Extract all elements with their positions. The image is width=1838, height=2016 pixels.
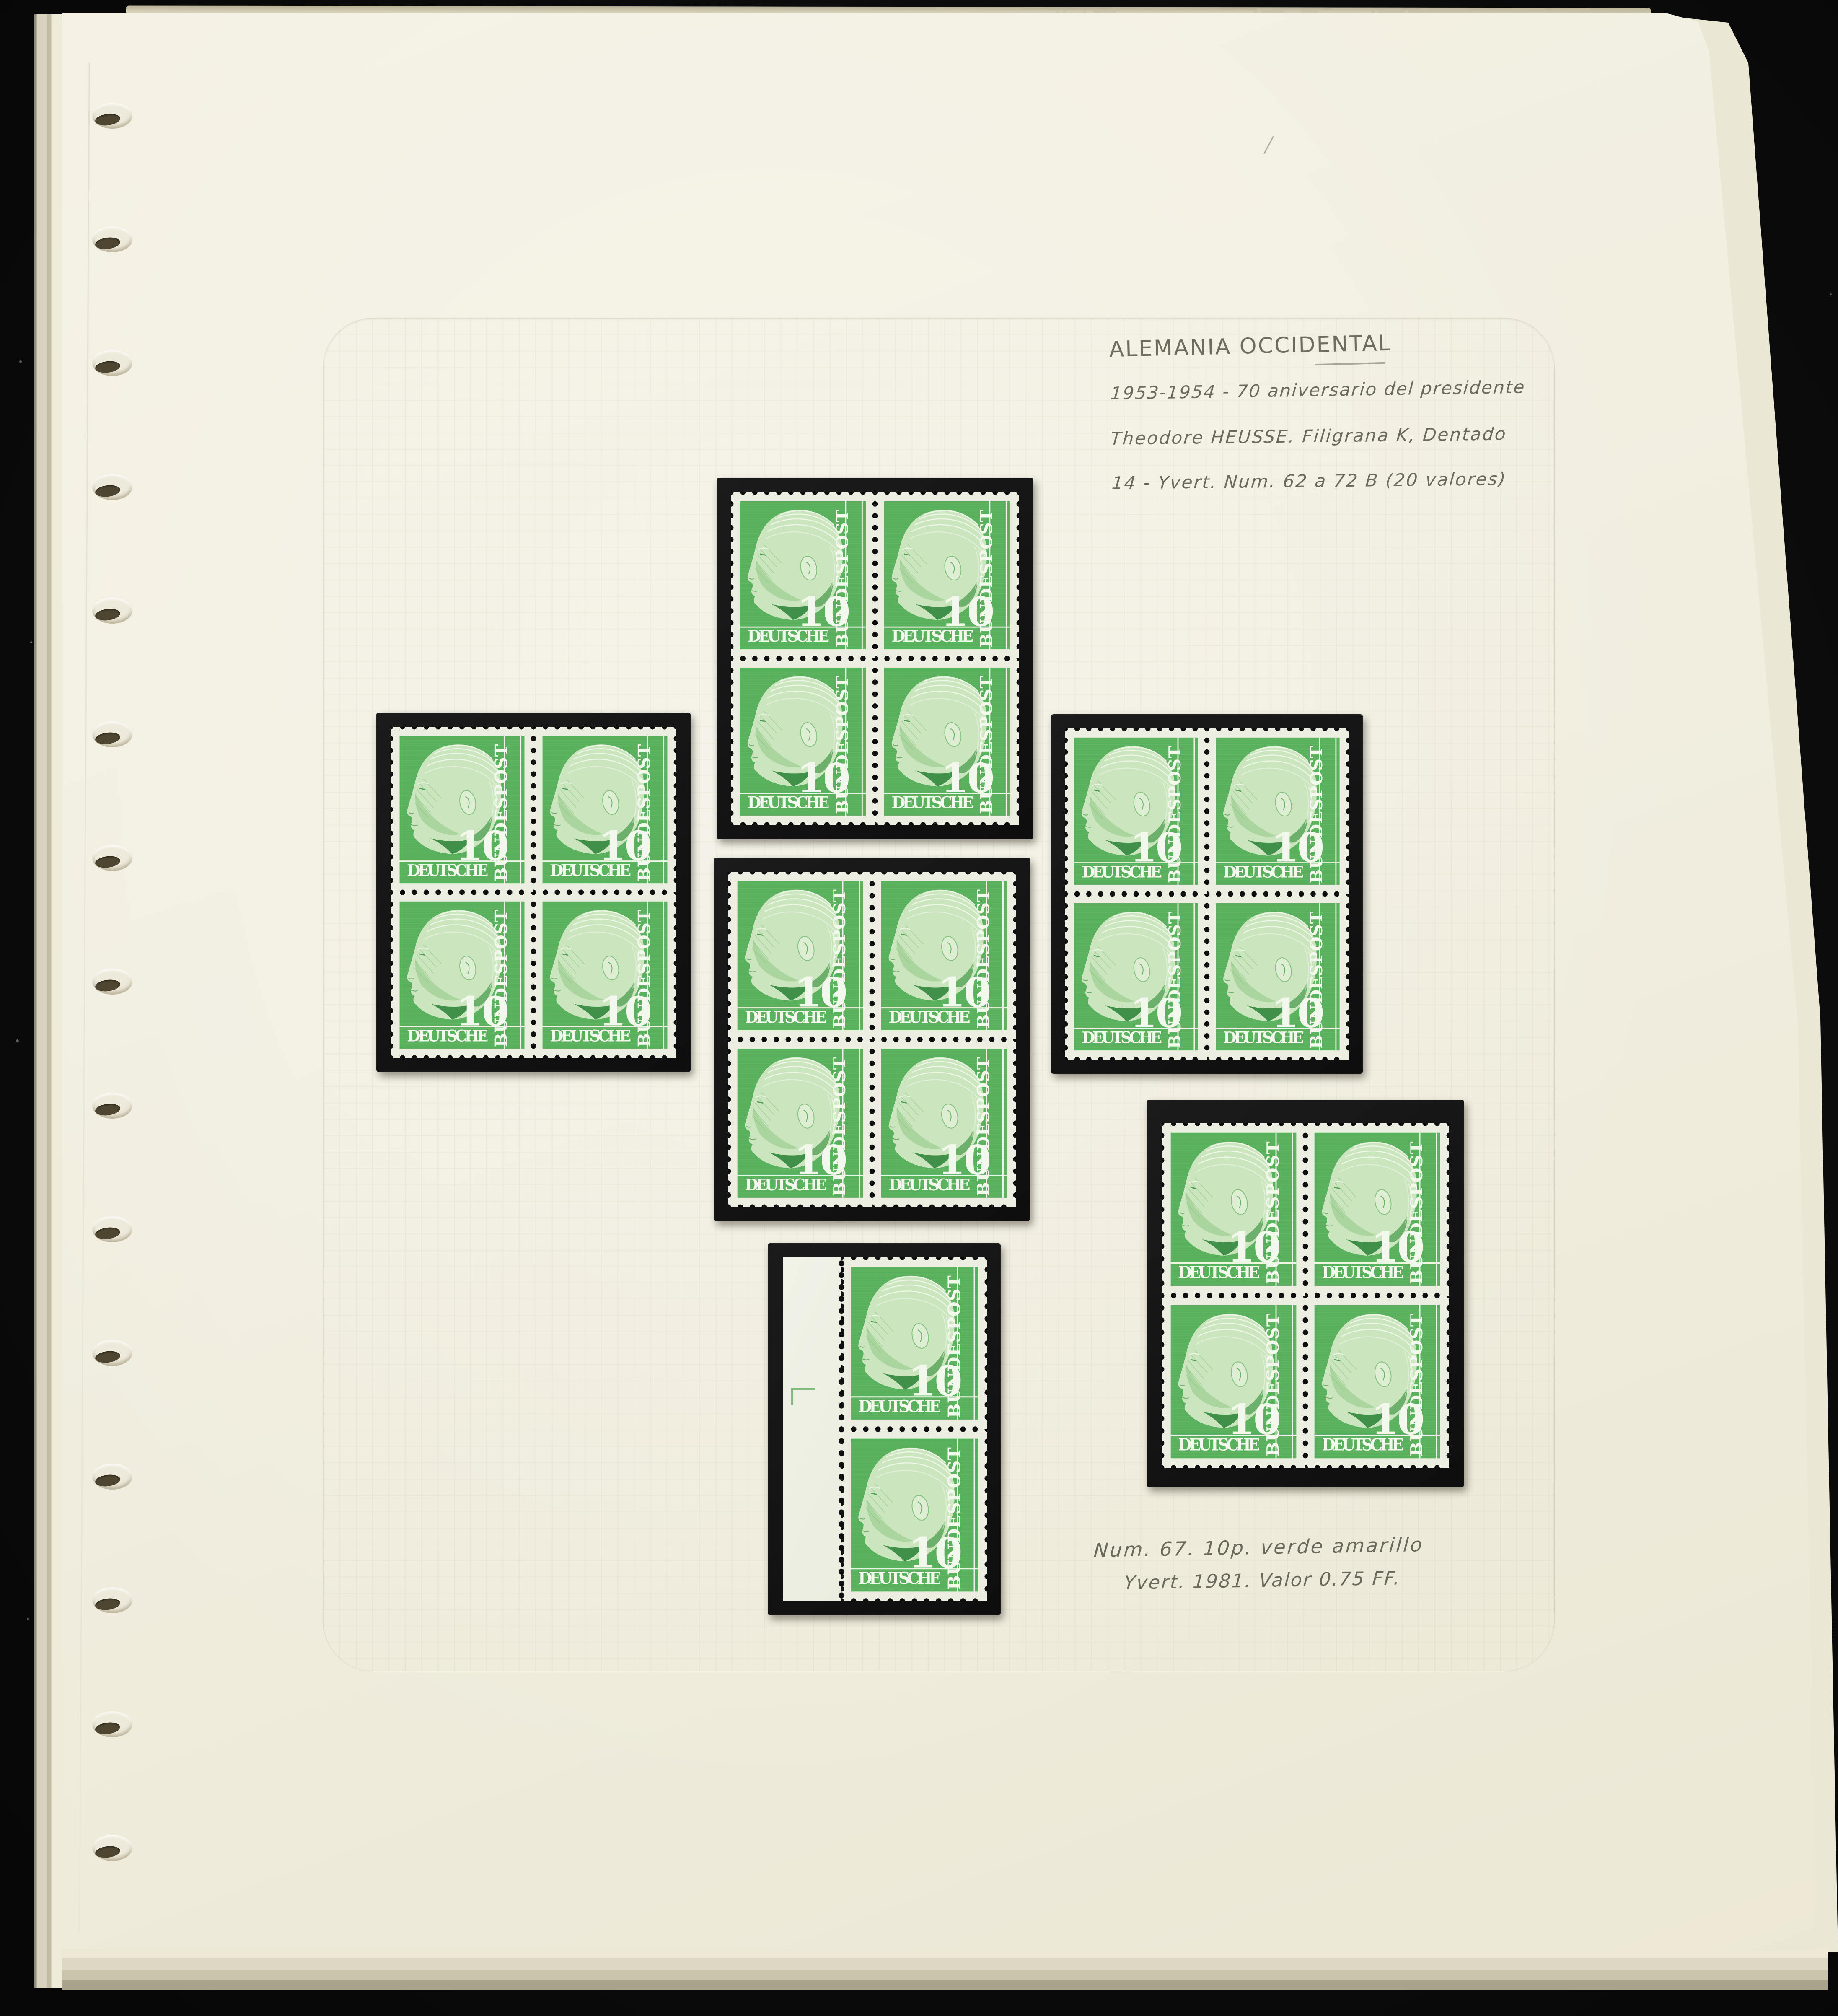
bottom-sheet-edges xyxy=(62,1946,1828,1990)
binder-hole xyxy=(92,350,132,376)
binder-hole xyxy=(92,226,132,252)
block-right xyxy=(1051,714,1363,1074)
block-bottom-right xyxy=(1147,1100,1464,1487)
page-stack-left-edge xyxy=(34,14,64,1988)
stamp xyxy=(731,492,875,658)
stamp-block-paper xyxy=(1065,728,1349,1060)
dust-speck xyxy=(1830,293,1832,295)
stamp xyxy=(1207,728,1349,894)
stamp xyxy=(875,492,1019,658)
binder-hole-opening xyxy=(95,360,121,374)
stamp xyxy=(1305,1296,1449,1468)
stamp xyxy=(728,872,872,1039)
album-photo-scene: ALEMANIA OCCIDENTAL 1953-1954 - 70 anive… xyxy=(0,0,1838,2016)
dust-speck xyxy=(19,360,22,363)
binder-hole-opening xyxy=(95,855,121,869)
stamp xyxy=(533,892,676,1058)
stamp xyxy=(1162,1123,1305,1296)
stamp xyxy=(1305,1123,1449,1296)
binder-hole-opening xyxy=(95,1102,121,1117)
stamp xyxy=(841,1257,987,1429)
binder-hole xyxy=(92,1835,132,1861)
stamp xyxy=(391,727,533,892)
binder-hole xyxy=(92,1587,132,1613)
binder-hole-opening xyxy=(95,236,121,251)
block-center xyxy=(714,858,1030,1221)
stamp xyxy=(533,727,676,892)
dust-speck xyxy=(16,1039,19,1042)
dust-speck xyxy=(30,641,32,643)
binder-hole-opening xyxy=(95,1721,121,1735)
binder-hole-opening xyxy=(95,979,121,993)
binder-hole-opening xyxy=(95,1226,121,1240)
binder-hole-opening xyxy=(95,112,121,127)
binder-hole xyxy=(92,474,132,500)
binder-hole xyxy=(92,721,132,747)
binder-hole-opening xyxy=(95,1845,121,1859)
stamp xyxy=(872,872,1016,1039)
stamp-block-paper xyxy=(391,727,676,1058)
stamp-block-paper xyxy=(728,872,1016,1207)
stamp xyxy=(841,1429,987,1601)
stamp-pair-paper xyxy=(841,1257,987,1601)
registration-mark xyxy=(791,1388,815,1405)
block-left xyxy=(376,713,691,1072)
binder-hole xyxy=(92,1093,132,1119)
binder-hole-opening xyxy=(95,1474,121,1488)
binder-hole-opening xyxy=(95,1597,121,1612)
dust-speck xyxy=(27,1618,29,1620)
stamp xyxy=(1207,894,1349,1060)
binder-hole-opening xyxy=(95,484,121,498)
binder-hole xyxy=(92,103,132,129)
binder-hole-opening xyxy=(95,731,121,745)
stamp xyxy=(875,658,1019,825)
stamp xyxy=(728,1039,872,1207)
block-top-center xyxy=(717,478,1033,839)
sheet-margin-selvage xyxy=(783,1257,841,1601)
binder-hole xyxy=(92,969,132,995)
annotation-line: 14 - Yvert. Num. 62 a 72 B (20 valores) xyxy=(1111,469,1507,493)
binder-hole xyxy=(92,1340,132,1366)
pair-bottom-center xyxy=(768,1243,1001,1615)
binder-hole xyxy=(92,1216,132,1242)
selvage-perforation-column xyxy=(838,1257,845,1601)
stamp xyxy=(731,658,875,825)
binder-hole xyxy=(92,845,132,871)
binder-hole xyxy=(92,1711,132,1737)
binder-hole xyxy=(92,1464,132,1490)
stamp-block-paper xyxy=(731,492,1019,825)
stamp xyxy=(1162,1296,1305,1468)
stamp xyxy=(872,1039,1016,1207)
binder-hole-opening xyxy=(95,607,121,622)
binder-hole xyxy=(92,598,132,624)
stamp xyxy=(391,892,533,1058)
stamp-block-paper xyxy=(1162,1123,1449,1468)
stamp xyxy=(1065,728,1207,894)
stamp xyxy=(1065,894,1207,1060)
binder-hole-opening xyxy=(95,1350,121,1364)
